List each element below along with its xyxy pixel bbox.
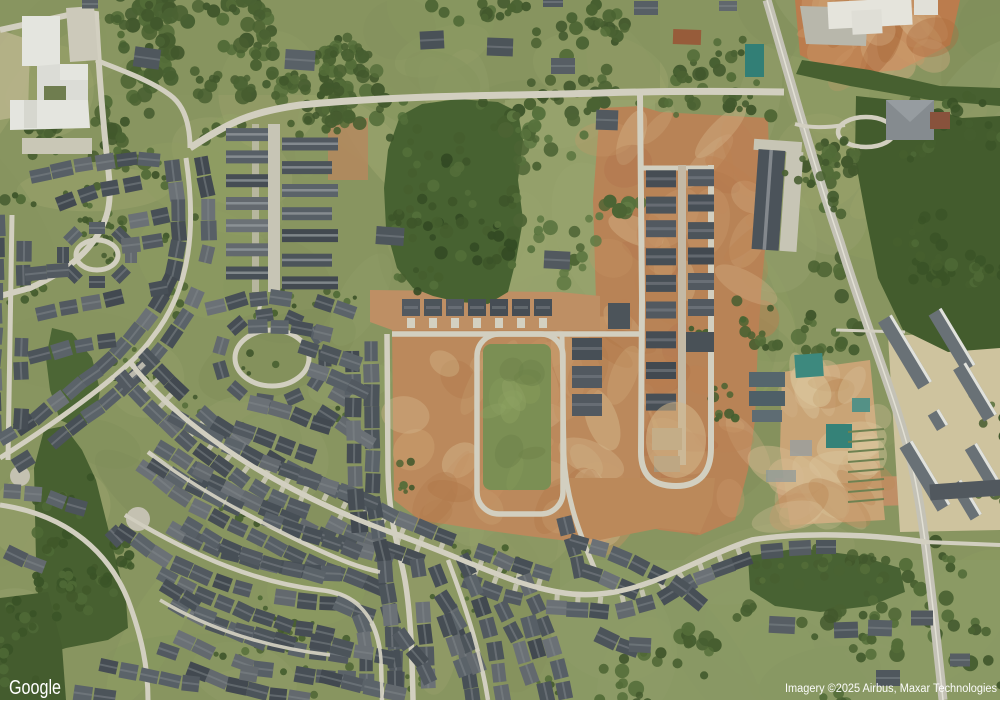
svg-text:Google: Google	[9, 677, 61, 699]
svg-text:Imagery ©2025 Airbus, Maxar Te: Imagery ©2025 Airbus, Maxar Technologies	[785, 683, 997, 695]
